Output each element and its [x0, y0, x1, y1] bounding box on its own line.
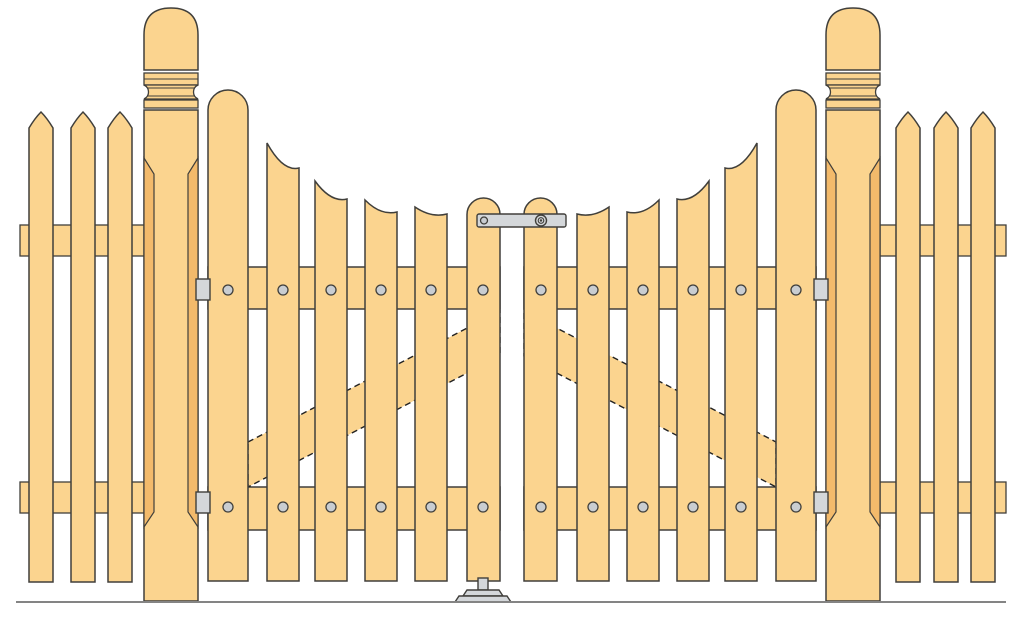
rail-screw: [688, 502, 698, 512]
post-right-dome-cap: [826, 8, 880, 70]
latch-pivot-screw: [481, 217, 488, 224]
gate-picket: [267, 143, 299, 581]
gate-left-rail-lower: [208, 487, 500, 530]
rail-screw: [426, 502, 436, 512]
fence-pickets-right: [896, 112, 995, 582]
rail-screw: [376, 285, 386, 295]
post-right-chamfer-right: [870, 158, 880, 527]
post-left-dome-cap: [144, 8, 198, 70]
drop-bolt-base-upper: [463, 590, 503, 596]
rail-screw: [736, 502, 746, 512]
gate-picket: [677, 181, 709, 581]
rail-screw: [688, 285, 698, 295]
gate-picket: [365, 200, 397, 581]
rail-screw: [223, 285, 233, 295]
rail-screw: [638, 285, 648, 295]
gate-picket: [315, 181, 347, 581]
gate-latch: [477, 214, 566, 227]
rail-screw: [376, 502, 386, 512]
post-right: [826, 8, 880, 601]
hinge-plate: [196, 279, 210, 300]
rail-screw: [326, 285, 336, 295]
gate-right-rail-lower: [524, 487, 816, 530]
rail-screw: [588, 502, 598, 512]
rail-screw: [791, 502, 801, 512]
gate-picket: [577, 207, 609, 581]
gate-picket: [415, 207, 447, 581]
gate-picket: [725, 143, 757, 581]
rail-screw: [588, 285, 598, 295]
gate-left: [208, 90, 500, 581]
drop-bolt: [455, 578, 511, 602]
rail-screw: [736, 285, 746, 295]
latch-ring-center-dot: [540, 219, 542, 221]
gate-right: [524, 90, 816, 581]
fence-pickets-left: [29, 112, 132, 582]
gate-right-rail-upper: [524, 267, 816, 309]
fence-picket: [971, 112, 995, 582]
fence-picket: [934, 112, 958, 582]
post-left: [144, 8, 198, 601]
drop-bolt-rod: [478, 578, 488, 590]
fence-section-right: [874, 112, 1006, 582]
post-left-neck: [144, 85, 198, 99]
rail-screw: [426, 285, 436, 295]
gate-picket: [627, 200, 659, 581]
gate-left-center-stile: [467, 198, 500, 581]
latch-bar: [477, 214, 566, 227]
fence-picket: [108, 112, 132, 582]
hinge-plate: [196, 492, 210, 513]
rail-screw: [326, 502, 336, 512]
rail-screw: [478, 285, 488, 295]
rail-screw: [638, 502, 648, 512]
hinge-plate: [814, 492, 828, 513]
rail-screw: [791, 285, 801, 295]
rail-screw: [478, 502, 488, 512]
rail-screw: [278, 502, 288, 512]
post-left-chamfer-left: [144, 158, 154, 527]
post-left-base-band: [144, 100, 198, 108]
rail-screw: [223, 502, 233, 512]
fence-picket: [29, 112, 53, 582]
rail-screw: [536, 502, 546, 512]
post-right-chamfer-left: [826, 158, 836, 527]
fence-section-left: [20, 112, 150, 582]
rail-screw: [278, 285, 288, 295]
hinge-plate: [814, 279, 828, 300]
post-right-base-band: [826, 100, 880, 108]
picket-gate-illustration: [0, 0, 1024, 620]
fence-picket: [896, 112, 920, 582]
rail-screw: [536, 285, 546, 295]
post-right-neck: [826, 85, 880, 99]
fence-picket: [71, 112, 95, 582]
post-left-chamfer-right: [188, 158, 198, 527]
gate-left-rail-upper: [208, 267, 500, 309]
gate-right-center-stile: [524, 198, 557, 581]
